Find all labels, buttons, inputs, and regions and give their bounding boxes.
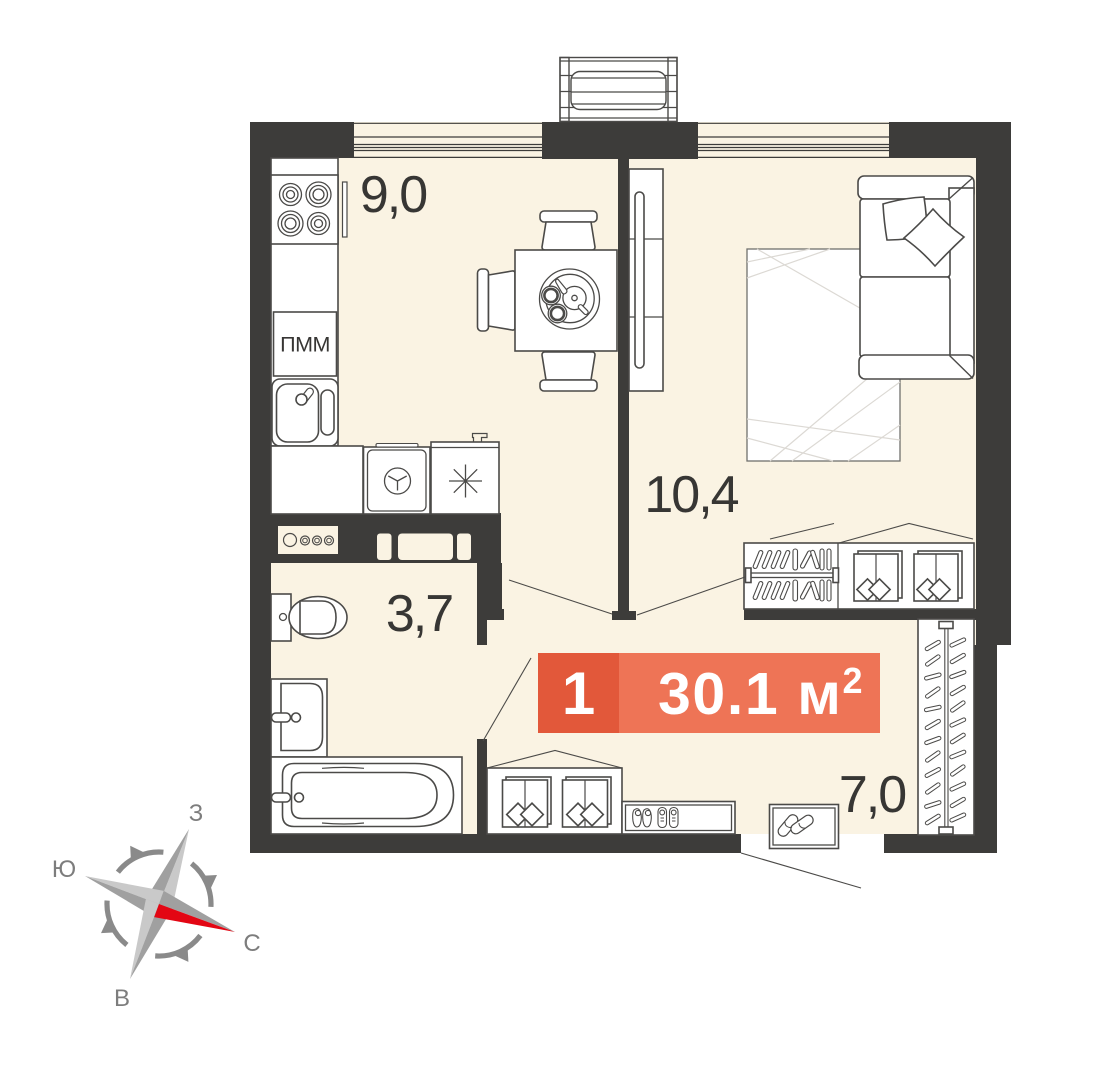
svg-text:3,7: 3,7 <box>386 585 452 643</box>
svg-text:10,4: 10,4 <box>644 466 738 524</box>
svg-text:З: З <box>189 800 204 827</box>
svg-text:9,0: 9,0 <box>360 166 426 224</box>
svg-text:1: 1 <box>562 660 595 727</box>
svg-text:ПММ: ПММ <box>280 333 330 357</box>
svg-text:С: С <box>243 930 260 957</box>
svg-text:30.1 м2: 30.1 м2 <box>658 660 864 727</box>
svg-text:В: В <box>114 985 130 1012</box>
svg-text:7,0: 7,0 <box>839 766 905 824</box>
svg-text:Ю: Ю <box>52 856 76 883</box>
